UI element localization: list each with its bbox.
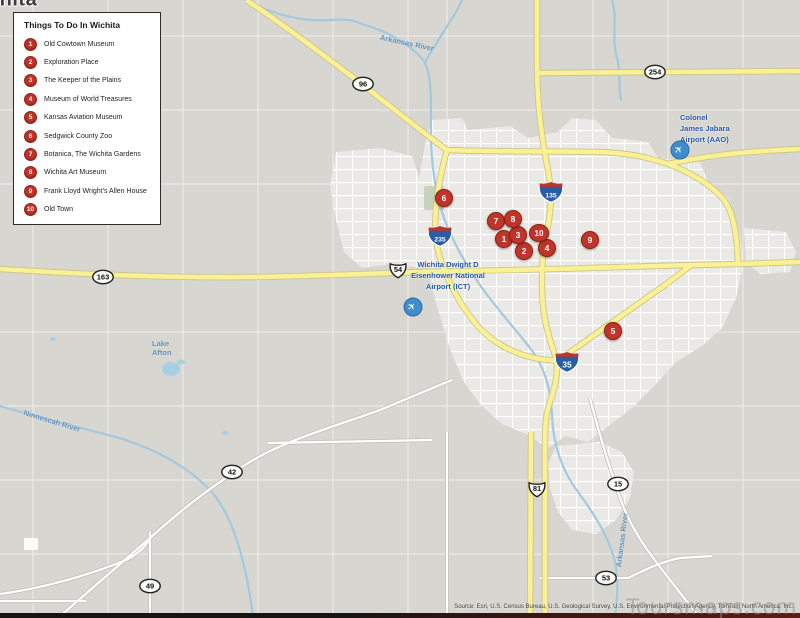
legend-item: 2Exploration Place [24,53,154,71]
highway-shield-96: 96 [352,76,375,92]
legend-item-marker: 7 [24,148,37,161]
map-marker-5: 5 [604,322,622,340]
legend-item: 7Botanica, The Wichita Gardens [24,145,154,163]
highway-shield-163: 163 [92,269,115,285]
map-marker-8: 8 [504,210,522,228]
legend-item: 6Sedgwick County Zoo [24,127,154,145]
legend-item: 9Frank Lloyd Wright's Allen House [24,182,154,200]
legend-item: 8Wichita Art Museum [24,164,154,182]
svg-text:163: 163 [97,273,110,282]
svg-text:35: 35 [562,359,572,369]
highway-shield-81: 81 [527,480,547,499]
legend-item: 1Old Cowtown Museum [24,35,154,53]
legend-item-marker: 3 [24,74,37,87]
map-marker-7: 7 [487,212,505,230]
legend-item-marker: 2 [24,56,37,69]
legend-item-label: Wichita Art Museum [44,169,106,176]
legend-item-marker: 5 [24,111,37,124]
highway-shield-53: 53 [595,570,618,586]
legend-items: 1Old Cowtown Museum2Exploration Place3Th… [24,35,154,219]
highway-shield-35: 35 [554,351,580,374]
airport-label-line: James Jabara [680,123,730,134]
airport-icon-aao: ✈ [671,141,690,160]
legend-item: 4Museum of World Treasures [24,90,154,108]
highway-shield-254: 254 [644,64,667,80]
legend-item-label: Museum of World Treasures [44,96,132,103]
highway-shield-54: 54 [388,261,408,280]
legend-item-label: Kansas Aviation Museum [44,114,122,121]
legend-item-label: Botanica, The Wichita Gardens [44,151,141,158]
airport-label-line: Wichita Dwight D [411,259,485,270]
airport-label-aao: ColonelJames JabaraAirport (AAO) [680,112,730,145]
legend-item-marker: 9 [24,185,37,198]
airport-label-ict: Wichita Dwight DEisenhower NationalAirpo… [411,259,485,292]
legend-panel: Things To Do In Wichita 1Old Cowtown Mus… [13,12,161,225]
map-marker-3: 3 [509,226,527,244]
legend-item-marker: 1 [24,38,37,51]
legend-item-marker: 4 [24,93,37,106]
airport-icon-ict: ✈ [404,298,423,317]
city-label-wichita: Wichita [0,0,37,12]
map-marker-6: 6 [435,189,453,207]
legend-item-label: Old Town [44,206,73,213]
map-marker-10: 10 [529,224,549,242]
legend-item-label: Old Cowtown Museum [44,41,114,48]
airplane-icon: ✈ [406,300,419,313]
legend-title: Things To Do In Wichita [24,20,154,30]
svg-text:235: 235 [434,236,446,243]
airplane-icon: ✈ [673,143,686,156]
map-marker-2: 2 [515,242,533,260]
highway-shield-235: 235 [427,225,453,248]
legend-item-marker: 10 [24,203,37,216]
svg-text:49: 49 [146,582,154,591]
legend-item: 10Old Town [24,201,154,219]
highway-shield-135: 135 [538,181,564,204]
airport-label-line: Eisenhower National [411,270,485,281]
watermark-toursmaps: Toursmaps.com [626,595,797,618]
legend-item-label: Sedgwick County Zoo [44,133,112,140]
svg-text:53: 53 [602,574,610,583]
svg-text:96: 96 [359,80,367,89]
highway-shield-49: 49 [139,578,162,594]
legend-item-label: Frank Lloyd Wright's Allen House [44,188,147,195]
legend-item-marker: 6 [24,130,37,143]
legend-item-label: The Keeper of the Plains [44,77,121,84]
airport-label-line: Colonel [680,112,730,123]
map-canvas[interactable]: Things To Do In Wichita 1Old Cowtown Mus… [0,0,800,618]
legend-item-label: Exploration Place [44,59,98,66]
legend-item: 3The Keeper of the Plains [24,72,154,90]
map-marker-9: 9 [581,231,599,249]
svg-text:42: 42 [228,468,236,477]
highway-shield-42: 42 [221,464,244,480]
legend-item-marker: 8 [24,166,37,179]
svg-text:54: 54 [394,265,403,274]
svg-text:254: 254 [649,68,662,77]
airport-label-line: Airport (ICT) [411,281,485,292]
legend-item: 5Kansas Aviation Museum [24,109,154,127]
highway-shield-15: 15 [607,476,630,492]
svg-text:15: 15 [614,480,622,489]
water-label-lake-afton: Lake Afton [152,339,180,357]
svg-text:81: 81 [533,484,541,493]
svg-text:135: 135 [545,192,557,199]
